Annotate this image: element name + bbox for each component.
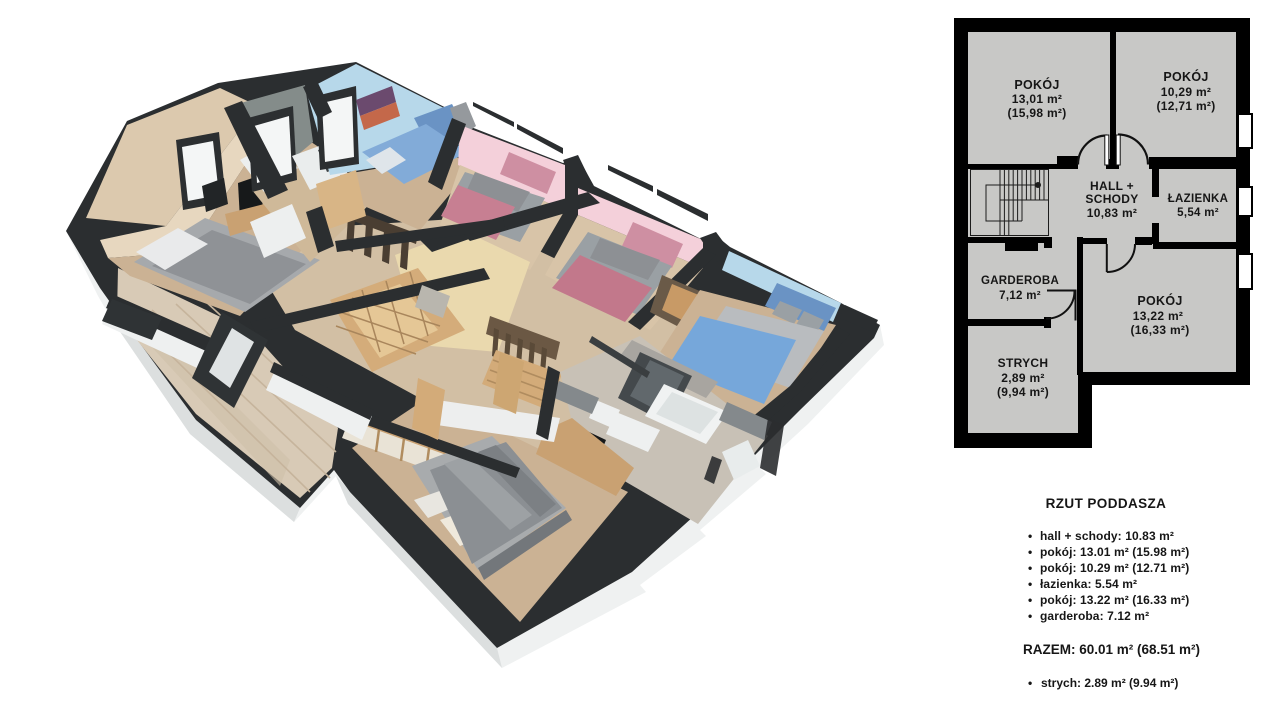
svg-text:13,01 m²: 13,01 m² <box>1012 92 1062 106</box>
svg-text:(15,98 m²): (15,98 m²) <box>1007 106 1066 120</box>
svg-text:7,12 m²: 7,12 m² <box>999 290 1041 302</box>
svg-text:garderoba: 7.12 m²: garderoba: 7.12 m² <box>1040 609 1149 623</box>
svg-text:10,29 m²: 10,29 m² <box>1161 85 1211 99</box>
svg-text:POKÓJ: POKÓJ <box>1014 77 1059 92</box>
svg-text:pokój: 10.29 m² (12.71 m²): pokój: 10.29 m² (12.71 m²) <box>1040 561 1189 575</box>
svg-text:•: • <box>1028 577 1032 591</box>
svg-text:•: • <box>1028 529 1032 543</box>
svg-text:hall + schody: 10.83 m²: hall + schody: 10.83 m² <box>1040 529 1174 543</box>
svg-text:SCHODY: SCHODY <box>1085 192 1138 206</box>
svg-text:ŁAZIENKA: ŁAZIENKA <box>1168 193 1229 205</box>
svg-text:•: • <box>1028 676 1032 690</box>
svg-text:łazienka: 5.54 m²: łazienka: 5.54 m² <box>1040 577 1137 591</box>
svg-text:(16,33 m²): (16,33 m²) <box>1130 323 1189 337</box>
svg-text:POKÓJ: POKÓJ <box>1163 69 1208 84</box>
svg-text:•: • <box>1028 561 1032 575</box>
svg-text:•: • <box>1028 593 1032 607</box>
svg-text:•: • <box>1028 545 1032 559</box>
svg-text:pokój: 13.22 m² (16.33 m²): pokój: 13.22 m² (16.33 m²) <box>1040 593 1189 607</box>
svg-text:GARDEROBA: GARDEROBA <box>981 275 1059 287</box>
svg-text:5,54 m²: 5,54 m² <box>1177 207 1219 219</box>
svg-text:•: • <box>1028 609 1032 623</box>
svg-text:10,83 m²: 10,83 m² <box>1087 206 1137 220</box>
svg-text:(9,94 m²): (9,94 m²) <box>997 385 1049 399</box>
svg-text:POKÓJ: POKÓJ <box>1137 293 1182 308</box>
svg-text:HALL +: HALL + <box>1090 179 1134 193</box>
svg-text:RZUT PODDASZA: RZUT PODDASZA <box>1046 496 1167 511</box>
svg-text:13,22 m²: 13,22 m² <box>1133 309 1183 323</box>
svg-text:2,89 m²: 2,89 m² <box>1001 371 1044 385</box>
svg-text:RAZEM: 60.01 m² (68.51 m²): RAZEM: 60.01 m² (68.51 m²) <box>1023 642 1200 657</box>
svg-text:STRYCH: STRYCH <box>998 356 1049 370</box>
svg-text:pokój: 13.01 m² (15.98 m²): pokój: 13.01 m² (15.98 m²) <box>1040 545 1189 559</box>
svg-text:strych: 2.89 m² (9.94 m²): strych: 2.89 m² (9.94 m²) <box>1041 676 1178 690</box>
svg-text:(12,71 m²): (12,71 m²) <box>1156 99 1215 113</box>
